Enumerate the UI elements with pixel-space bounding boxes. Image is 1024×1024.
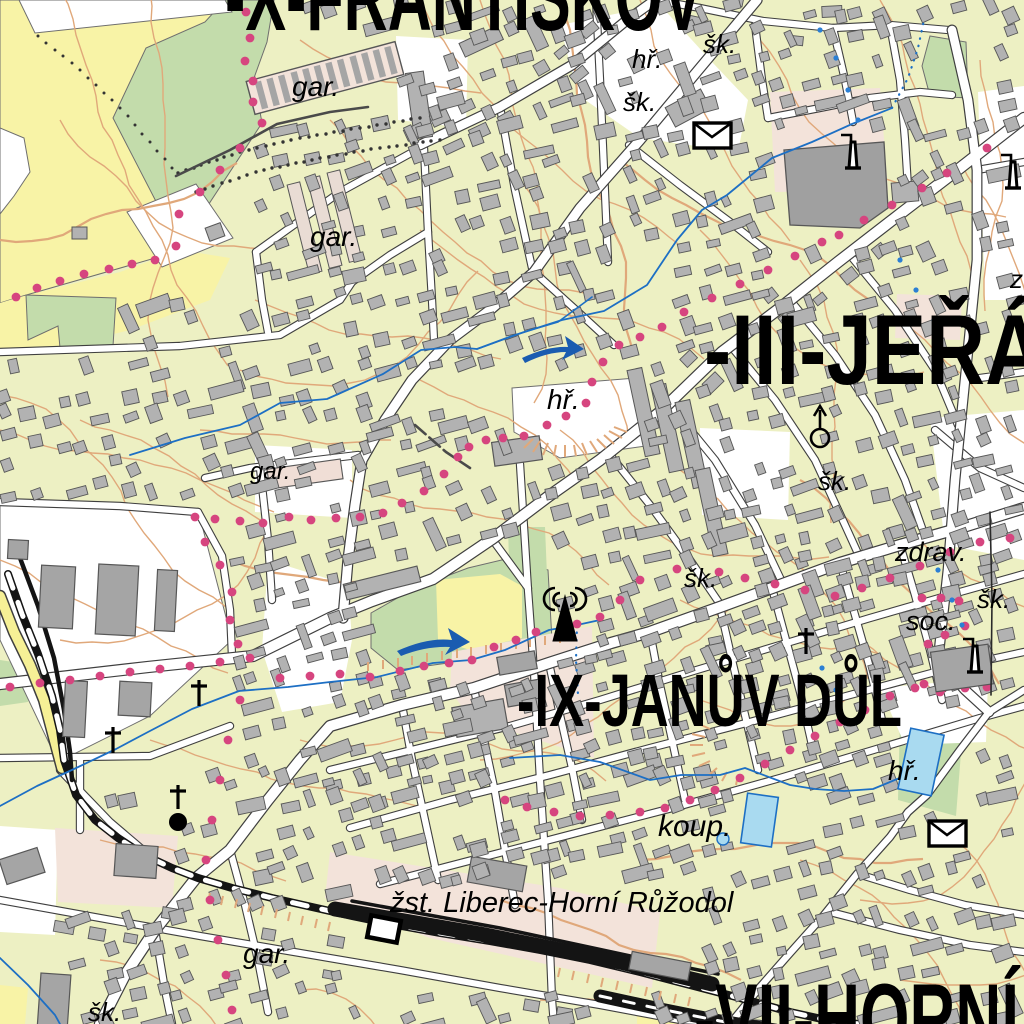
svg-text:gar.: gar.: [310, 221, 357, 252]
svg-text:zdrav.: zdrav.: [894, 537, 967, 567]
svg-text:-IX-JANŮV DŮL: -IX-JANŮV DŮL: [517, 654, 902, 742]
svg-text:gar.: gar.: [243, 938, 290, 969]
svg-text:šk.: šk.: [703, 29, 736, 59]
svg-text:gar.: gar.: [250, 458, 290, 485]
svg-text:gar.: gar.: [292, 71, 339, 102]
svg-text:-III-JEŘÁ: -III-JEŘÁ: [704, 294, 1024, 405]
svg-text:hř.: hř.: [888, 755, 921, 786]
svg-text:šk.: šk.: [977, 584, 1010, 614]
svg-text:šk.: šk.: [623, 87, 656, 117]
svg-text:šk.: šk.: [818, 466, 851, 496]
svg-text:-VII-HORNÍ: -VII-HORNÍ: [694, 963, 1021, 1024]
svg-text:koup.: koup.: [658, 810, 731, 843]
svg-text:soc.: soc.: [906, 606, 956, 636]
svg-text:šk.: šk.: [88, 997, 121, 1024]
svg-text:žst. Liberec-Horní Růžodol: žst. Liberec-Horní Růžodol: [389, 887, 735, 919]
svg-text:-X-FRANTIŠKOV: -X-FRANTIŠKOV: [225, 0, 703, 51]
svg-text:hř.: hř.: [547, 384, 580, 415]
svg-text:šk.: šk.: [684, 563, 717, 593]
svg-text:z: z: [1009, 264, 1023, 294]
